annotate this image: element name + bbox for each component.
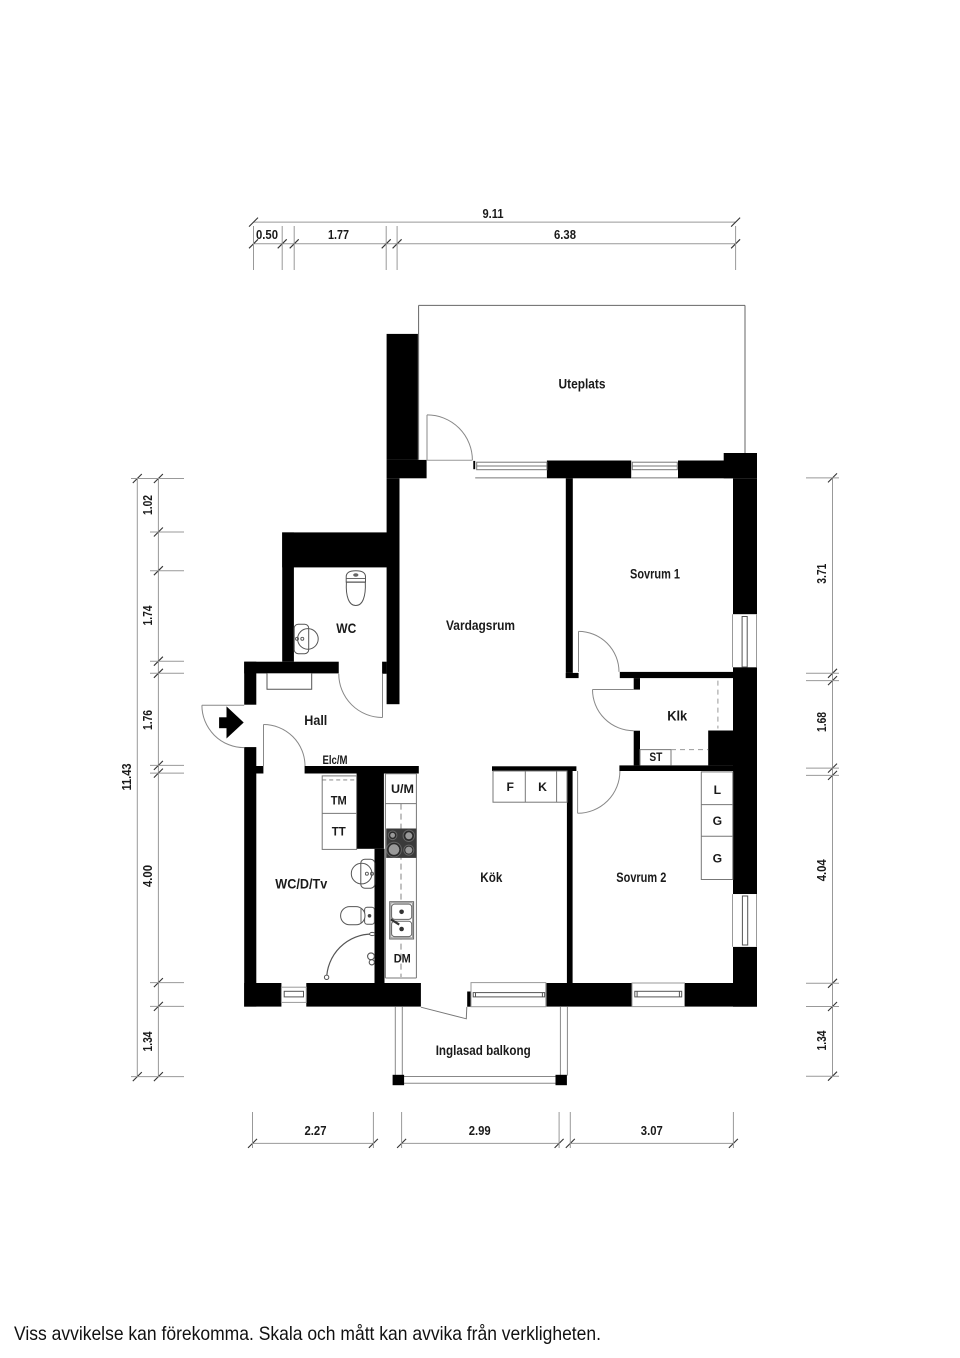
svg-text:3.07: 3.07 (641, 1123, 663, 1138)
svg-text:1.34: 1.34 (814, 1030, 829, 1051)
svg-text:Hall: Hall (304, 713, 327, 728)
svg-text:Sovrum 1: Sovrum 1 (630, 567, 680, 582)
svg-text:Vardagsrum: Vardagsrum (446, 618, 515, 633)
svg-text:WC/D/Tv: WC/D/Tv (275, 876, 327, 891)
svg-text:DM: DM (394, 951, 411, 965)
svg-text:TM: TM (331, 793, 347, 807)
svg-text:1.34: 1.34 (140, 1031, 155, 1052)
svg-text:0.50: 0.50 (256, 227, 278, 242)
svg-text:4.00: 4.00 (140, 865, 155, 887)
svg-text:U/M: U/M (391, 782, 414, 796)
svg-text:1.74: 1.74 (140, 605, 155, 626)
svg-text:F: F (506, 780, 513, 794)
svg-text:Elc/M: Elc/M (323, 753, 348, 767)
svg-text:1.02: 1.02 (140, 495, 155, 515)
svg-text:1.68: 1.68 (814, 712, 829, 732)
svg-text:Kök: Kök (480, 870, 502, 885)
svg-text:K: K (538, 780, 547, 794)
svg-text:Inglasad balkong: Inglasad balkong (436, 1043, 531, 1058)
svg-text:G: G (713, 851, 722, 865)
svg-text:L: L (714, 783, 722, 797)
svg-text:ST: ST (649, 750, 662, 764)
svg-text:Viss avvikelse kan förekomma.: Viss avvikelse kan förekomma. Skala och … (14, 1323, 601, 1345)
svg-text:3.71: 3.71 (814, 564, 829, 584)
svg-text:Klk: Klk (667, 709, 687, 724)
svg-text:1.77: 1.77 (328, 227, 349, 242)
svg-text:1.76: 1.76 (140, 710, 155, 730)
svg-text:2.99: 2.99 (469, 1123, 491, 1138)
svg-text:G: G (713, 814, 722, 828)
svg-text:4.04: 4.04 (814, 859, 829, 882)
svg-text:Uteplats: Uteplats (559, 377, 606, 392)
svg-text:2.27: 2.27 (305, 1123, 327, 1138)
svg-text:6.38: 6.38 (554, 227, 576, 242)
svg-text:11.43: 11.43 (119, 764, 134, 791)
svg-text:TT: TT (332, 824, 347, 838)
svg-text:WC: WC (336, 621, 356, 636)
svg-text:Sovrum 2: Sovrum 2 (616, 870, 666, 885)
svg-text:9.11: 9.11 (483, 206, 504, 221)
